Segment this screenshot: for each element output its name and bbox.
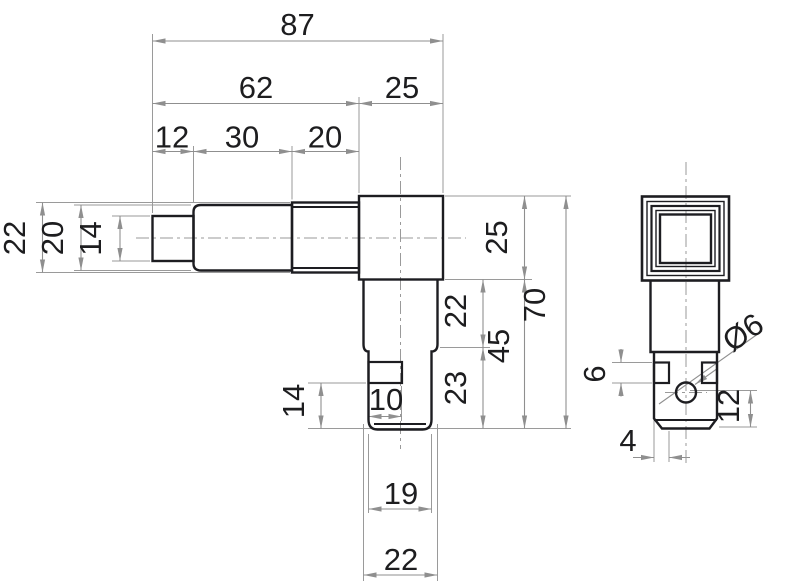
- front-view-dimension-labels: 87 62 25 12 30 20 22 20 14 25 22 45 23 7…: [0, 7, 552, 577]
- dim-shaft-length: 62: [239, 70, 273, 105]
- dim-notch-height: 6: [577, 365, 612, 382]
- dim-leg-upper-height: 22: [438, 294, 473, 328]
- side-notch-right: [702, 363, 717, 384]
- dim-head-length: 25: [385, 70, 419, 105]
- dim-tip-segment: 12: [155, 120, 189, 155]
- dim-collar-height: 22: [0, 221, 32, 255]
- dim-collar-segment: 20: [308, 120, 342, 155]
- dim-leg-width: 22: [384, 542, 418, 577]
- dim-total-length: 87: [280, 7, 314, 42]
- side-view-dimension-labels: 6 4 12 Ø6: [577, 306, 770, 458]
- front-view-dimension-lines: [43, 41, 567, 575]
- side-body: [651, 281, 720, 353]
- front-view-extension-lines: [36, 34, 571, 581]
- dim-slot-to-bottom: 14: [276, 384, 311, 418]
- dim-mid-segment: 30: [225, 120, 259, 155]
- dim-slot-width: 10: [369, 382, 403, 417]
- technical-drawing: 87 62 25 12 30 20 22 20 14 25 22 45 23 7…: [0, 0, 800, 585]
- dim-notch-depth: 4: [619, 423, 636, 458]
- dim-overall-height: 70: [517, 288, 552, 322]
- dim-tip-height: 14: [73, 221, 108, 255]
- side-notch-left: [654, 363, 669, 384]
- dim-hole-to-bottom: 12: [711, 389, 746, 423]
- front-notch: [369, 362, 403, 383]
- dim-lower-width: 19: [384, 476, 418, 511]
- dim-leg-total-height: 45: [481, 329, 516, 363]
- dim-leg-lower-height: 23: [438, 371, 473, 405]
- dim-hole-diameter: Ø6: [716, 306, 770, 358]
- front-collar-section: [292, 203, 359, 273]
- drawing-canvas: 87 62 25 12 30 20 22 20 14 25 22 45 23 7…: [0, 0, 800, 585]
- dim-mid-height: 20: [35, 221, 70, 255]
- dim-head-height: 25: [479, 220, 514, 254]
